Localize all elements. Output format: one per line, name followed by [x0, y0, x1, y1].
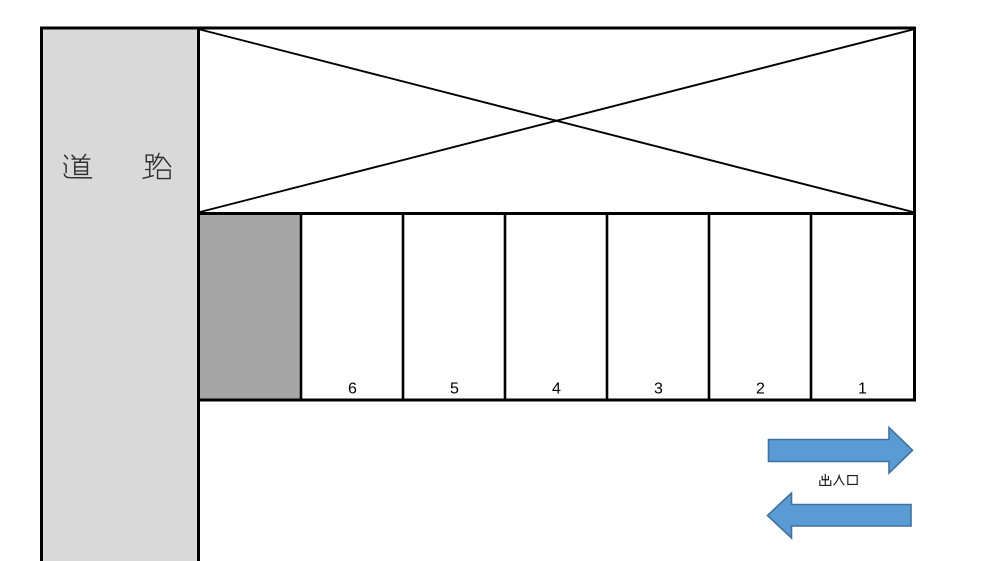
svg-text:1: 1 [858, 381, 867, 398]
svg-text:2: 2 [756, 381, 765, 398]
svg-text:3: 3 [654, 381, 663, 398]
svg-text:4: 4 [552, 381, 561, 398]
svg-text:5: 5 [450, 381, 459, 398]
svg-text:6: 6 [348, 381, 357, 398]
